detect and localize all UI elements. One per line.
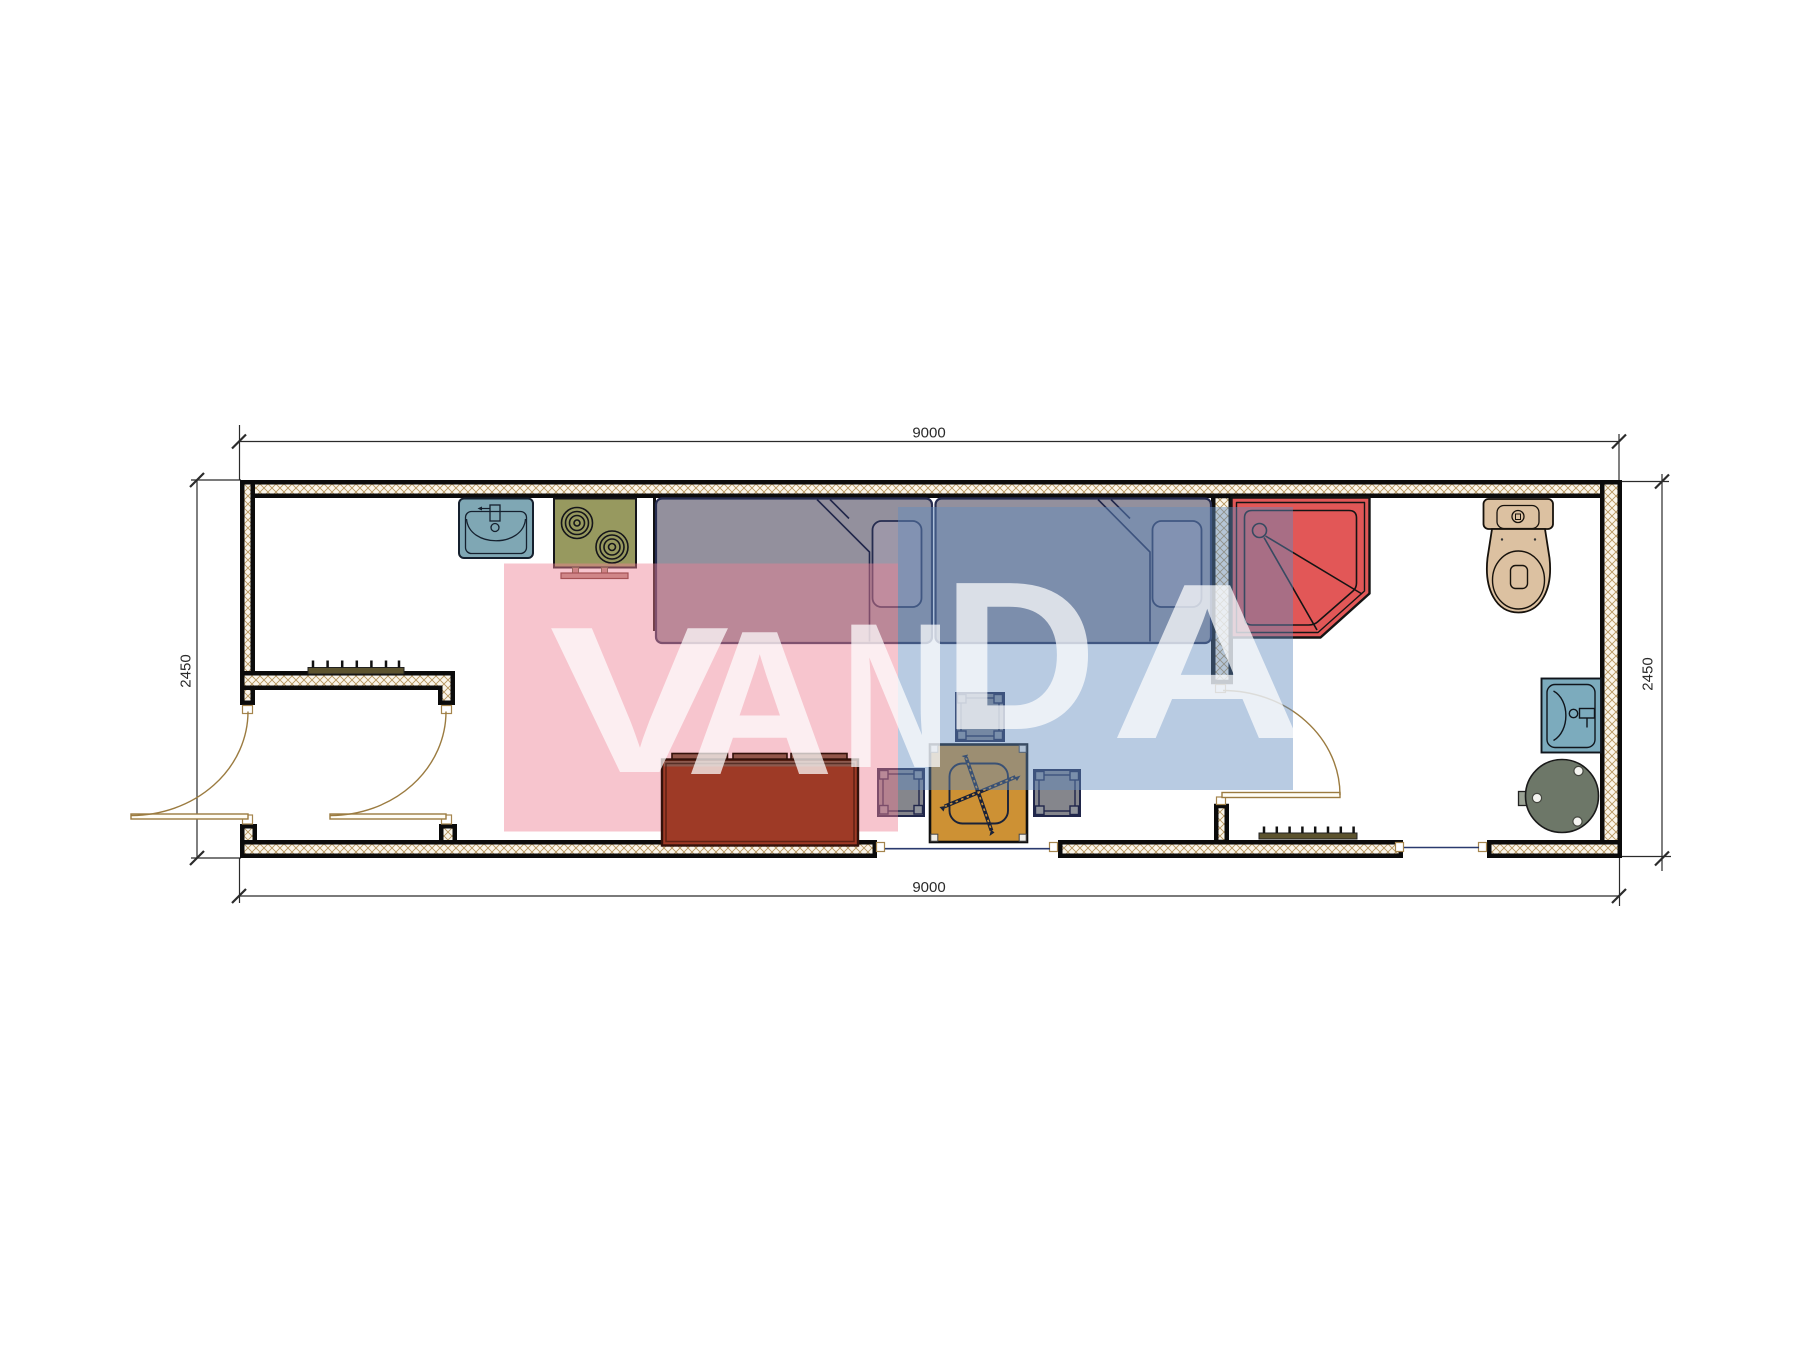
svg-text:9000: 9000 [912, 425, 945, 442]
svg-text:D: D [942, 538, 1097, 775]
svg-text:2450: 2450 [1640, 657, 1657, 690]
svg-text:N: N [841, 581, 950, 812]
svg-text:A: A [1110, 538, 1304, 786]
svg-text:2450: 2450 [178, 654, 195, 687]
svg-text:9000: 9000 [912, 879, 945, 896]
svg-text:A: A [686, 587, 834, 818]
